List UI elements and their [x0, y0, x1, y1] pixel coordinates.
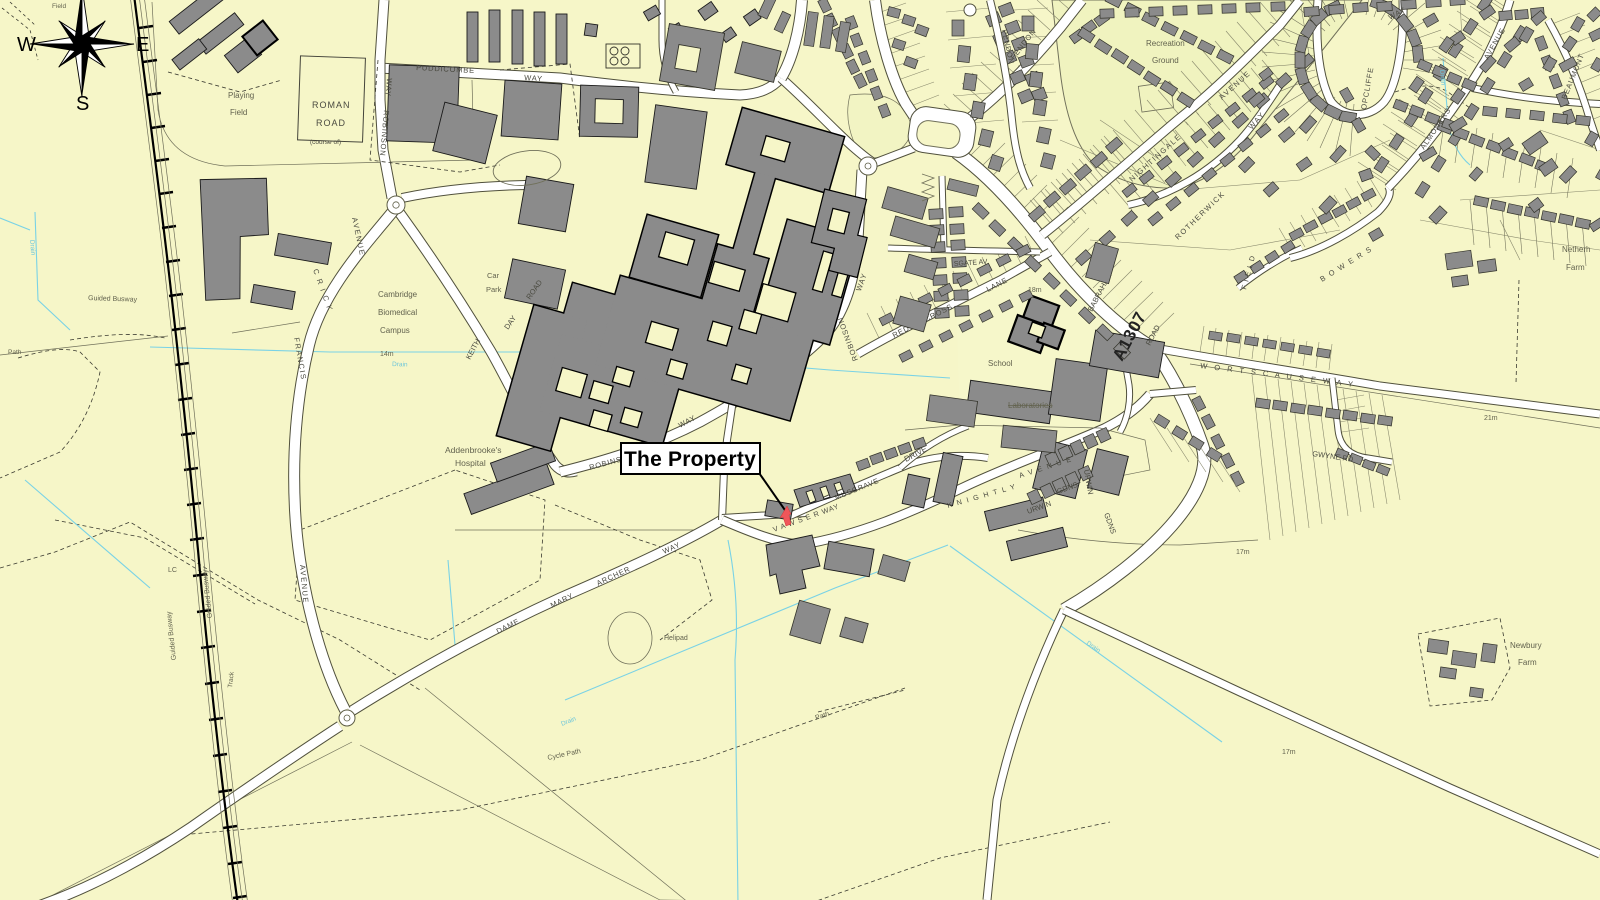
svg-text:Ground: Ground — [1152, 56, 1179, 65]
svg-text:Addenbrooke's: Addenbrooke's — [445, 445, 501, 455]
svg-text:Drain: Drain — [392, 361, 408, 369]
svg-text:21m: 21m — [1484, 415, 1498, 422]
svg-text:W: W — [17, 34, 36, 56]
svg-text:Helipad: Helipad — [664, 635, 688, 642]
svg-text:14m: 14m — [380, 351, 394, 358]
svg-text:Farm: Farm — [1518, 658, 1537, 667]
svg-text:18m: 18m — [1028, 287, 1042, 294]
svg-text:Newbury: Newbury — [1510, 641, 1542, 650]
svg-text:Path: Path — [8, 349, 22, 356]
svg-text:ROMAN: ROMAN — [312, 100, 351, 110]
svg-text:17m: 17m — [1236, 549, 1250, 556]
svg-text:WAY: WAY — [383, 78, 394, 97]
svg-text:Campus: Campus — [380, 326, 410, 335]
svg-text:(course of): (course of) — [310, 139, 341, 146]
svg-text:Car: Car — [487, 271, 500, 280]
svg-text:S: S — [76, 93, 89, 115]
svg-text:Playing: Playing — [228, 91, 254, 100]
svg-text:Field: Field — [230, 108, 247, 117]
svg-text:Drain: Drain — [1438, 70, 1446, 86]
svg-text:Recreation: Recreation — [1146, 39, 1185, 48]
svg-text:LC: LC — [168, 567, 177, 574]
svg-text:ROAD: ROAD — [316, 118, 346, 128]
svg-text:Drain: Drain — [28, 240, 36, 256]
svg-text:Netherh: Netherh — [1562, 245, 1590, 254]
svg-text:E: E — [136, 34, 149, 56]
svg-text:Laboratories: Laboratories — [1008, 401, 1052, 410]
svg-text:Field: Field — [52, 3, 66, 10]
svg-text:The Property: The Property — [624, 448, 756, 471]
svg-text:Hospital: Hospital — [455, 458, 486, 468]
svg-text:WAY: WAY — [524, 73, 543, 83]
svg-text:Biomedical: Biomedical — [378, 308, 417, 317]
svg-text:Farm: Farm — [1566, 263, 1585, 272]
svg-text:Park: Park — [486, 285, 502, 294]
svg-text:Cambridge: Cambridge — [378, 290, 418, 299]
svg-text:School: School — [988, 359, 1013, 368]
svg-text:17m: 17m — [1282, 749, 1296, 756]
